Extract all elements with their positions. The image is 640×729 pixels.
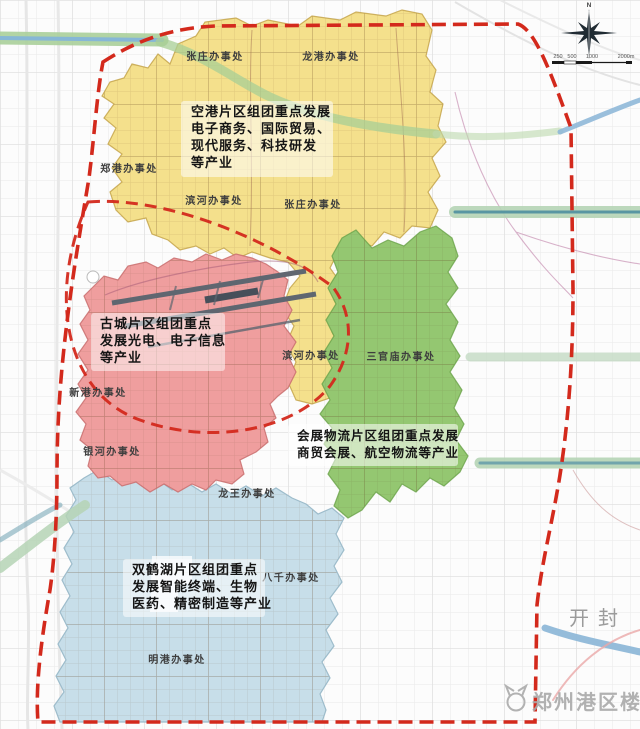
annotation-line: 等产业	[190, 155, 233, 170]
office-label: 龙王办事处	[217, 487, 276, 500]
annotation-line: 发展智能终端、生物	[131, 579, 258, 594]
planning-map: 张庄办事处 龙港办事处 郑港办事处 滨河办事处 张庄办事处 滨河办事处 三官庙办…	[0, 0, 640, 729]
office-label: 张庄办事处	[186, 50, 244, 63]
office-label: 郑港办事处	[100, 162, 158, 175]
annotation-line: 现代服务、科技研发	[191, 138, 317, 153]
svg-text:2000m: 2000m	[618, 54, 635, 60]
office-label: 三官庙办事处	[367, 350, 436, 363]
annotation-line: 医药、精密制造等产业	[132, 596, 272, 611]
river-line	[0, 38, 162, 40]
svg-text:500: 500	[567, 54, 576, 60]
zone-huizhan-wuliu	[320, 226, 468, 518]
office-label: 张庄办事处	[284, 198, 342, 211]
office-label: 新港办事处	[69, 386, 127, 399]
office-label: 滨河办事处	[282, 349, 340, 362]
watermark-text: 郑州港区楼市	[532, 690, 640, 714]
office-label: 滨河办事处	[185, 194, 243, 207]
annotation-line: 会展物流片区组团重点发展	[297, 428, 459, 443]
annotation-line: 等产业	[99, 350, 142, 365]
kaifeng-label: 开封	[569, 607, 627, 630]
office-label: 龙港办事处	[301, 50, 360, 63]
svg-text:N: N	[587, 2, 592, 9]
svg-text:250: 250	[553, 54, 562, 60]
annotation-line: 发展光电、电子信息	[99, 333, 226, 348]
office-label: 八千办事处	[261, 571, 320, 584]
annotation-konggang: 空港片区组团重点发展 电子商务、国际贸易、 现代服务、科技研发 等产业	[181, 101, 333, 177]
annotation-line: 电子商务、国际贸易、	[191, 121, 331, 136]
annotation-line: 空港片区组团重点发展	[191, 104, 331, 119]
svg-text:1000: 1000	[586, 54, 598, 60]
annotation-huizhan: 会展物流片区组团重点发展 商贸会展、航空物流等产业	[288, 424, 459, 466]
annotation-shuanghehu: 双鹤湖片区组团重点 发展智能终端、生物 医药、精密制造等产业	[123, 559, 272, 617]
office-label: 银河办事处	[83, 445, 141, 458]
office-label: 明港办事处	[148, 653, 206, 666]
annotation-gucheng: 古城片区组团重点 发展光电、电子信息 等产业	[91, 313, 226, 371]
annotation-line: 古城片区组团重点	[100, 316, 212, 331]
airport-white-spot	[87, 271, 99, 283]
annotation-line: 商贸会展、航空物流等产业	[297, 445, 459, 460]
annotation-line: 双鹤湖片区组团重点	[132, 562, 258, 577]
